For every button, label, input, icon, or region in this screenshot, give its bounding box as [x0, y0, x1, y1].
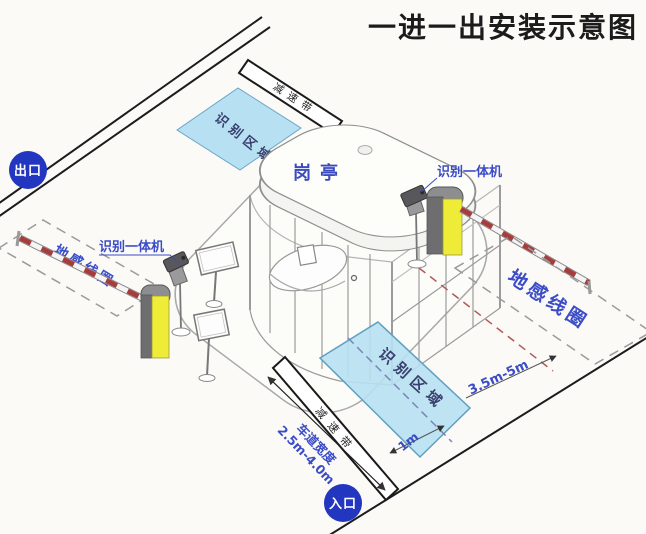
installation-diagram: 减速带 识别区域 地感线圈	[0, 0, 646, 534]
right-camera-label: 识别一体机	[437, 164, 502, 180]
exit-badge-label: 出口	[14, 163, 42, 179]
left-camera-label: 识别一体机	[99, 239, 164, 255]
left-barrier-cabinet	[141, 285, 170, 358]
diagram-canvas: 减速带 识别区域 地感线圈	[0, 0, 646, 534]
exit-badge: 出口	[9, 151, 47, 189]
entry-badge: 入口	[324, 484, 362, 522]
entry-badge-label: 入口	[329, 497, 357, 512]
diagram-title: 一进一出安装示意图	[368, 11, 638, 44]
guard-booth-label: 岗亭	[293, 162, 347, 184]
right-barrier-cabinet	[427, 187, 463, 255]
